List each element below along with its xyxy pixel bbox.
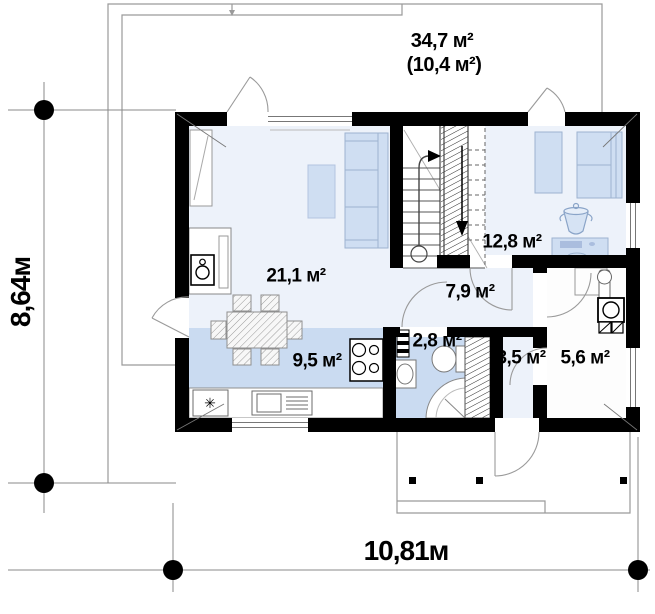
wardrobe-icon [465, 337, 490, 418]
floor-plan-canvas: 34,7 м² (10,4 м²) 21,1 м² 9,5 м² 7,9 м² … [0, 0, 655, 614]
bathroom-area-label: 2,8 м² [412, 332, 461, 351]
chair-icon [261, 349, 279, 365]
chair-icon [261, 295, 279, 311]
stair-section-hatch [441, 126, 468, 268]
porch-post [476, 477, 483, 484]
porch-post [409, 477, 416, 484]
kitchen-counter [189, 388, 383, 418]
fridge-symbol: ✳ [204, 396, 216, 410]
window-utility-right [626, 348, 640, 407]
washbasin-icon [394, 360, 416, 388]
window-bedroom-right [626, 203, 640, 248]
dimension-dot [34, 473, 54, 493]
chair-icon [287, 321, 302, 339]
chair-icon [233, 295, 251, 311]
coffee-table-icon [308, 165, 335, 218]
tv-unit-icon [190, 130, 212, 206]
chair-icon [233, 349, 251, 365]
height-dimension-label: 8,64м [7, 257, 35, 327]
stair-wall [390, 126, 403, 268]
fireplace-icon [189, 228, 231, 294]
sofa-icon [345, 133, 388, 248]
door-porch-entrance [495, 432, 539, 476]
bedroom-area-label: 12,8 м² [482, 233, 541, 252]
dimension-dot [34, 100, 54, 120]
door-bedroom-entrance [528, 88, 565, 112]
attic-area-label: 34,7 м² [411, 31, 473, 51]
attic-area-secondary-label: (10,4 м²) [407, 55, 482, 75]
window-kitchen-bottom [232, 418, 308, 432]
dimension-dot [163, 560, 183, 580]
kitchen-area-label: 9,5 м² [292, 352, 341, 371]
bedroom-sofa-icon [577, 132, 622, 198]
rug-icon [535, 132, 562, 193]
stove-icon [350, 339, 383, 381]
door-living-top [227, 77, 268, 112]
sink-icon [252, 391, 312, 415]
chair-icon [211, 321, 226, 339]
porch-post [620, 477, 627, 484]
living-room-area-label: 21,1 м² [266, 267, 325, 286]
plan-drawing [0, 0, 655, 614]
utility-area-label: 5,6 м² [560, 349, 609, 368]
width-dimension-label: 10,81м [364, 537, 449, 565]
dimension-dot [628, 560, 648, 580]
vestibule-area-label: 3,5 м² [496, 349, 545, 368]
hall-area-label: 7,9 м² [445, 283, 494, 302]
